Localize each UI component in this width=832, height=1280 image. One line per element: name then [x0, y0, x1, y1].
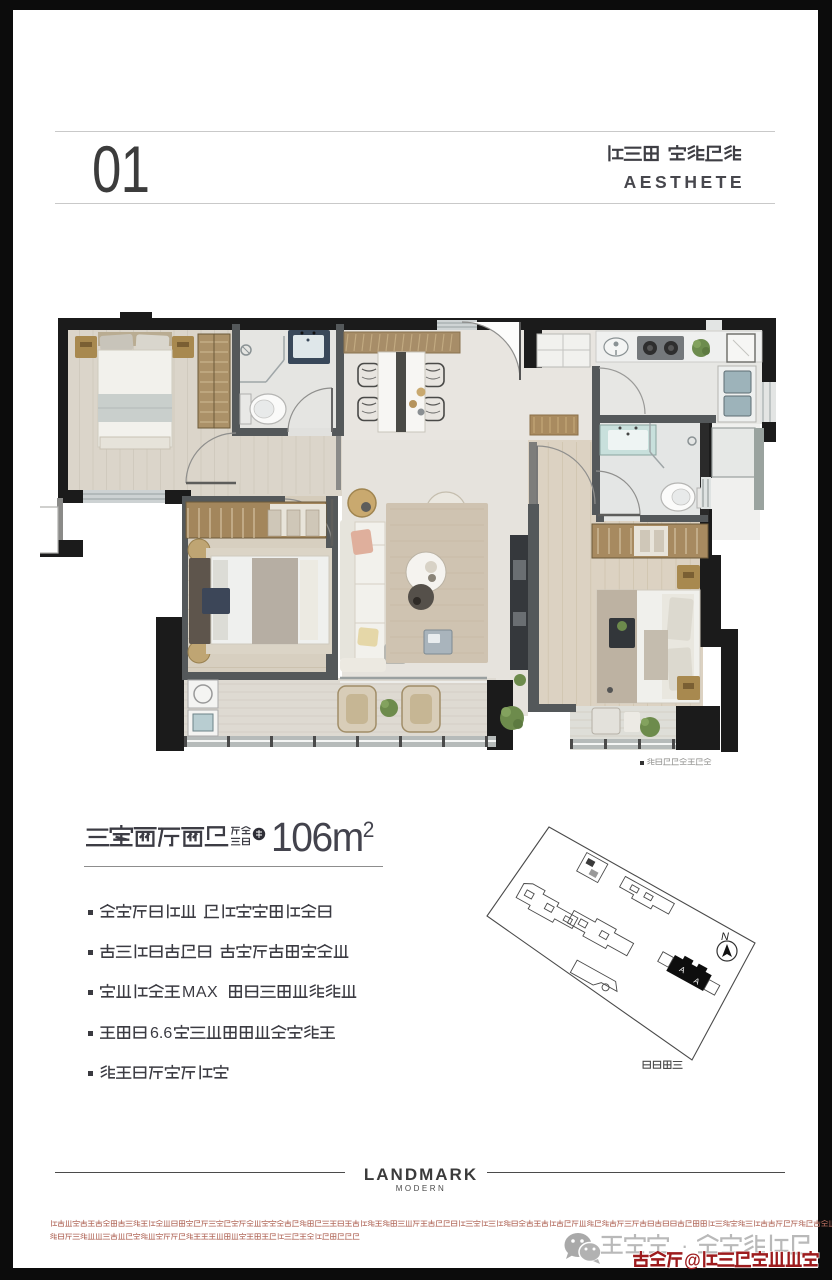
svg-text:N: N [721, 931, 729, 943]
svg-text:@: @ [684, 1251, 701, 1270]
